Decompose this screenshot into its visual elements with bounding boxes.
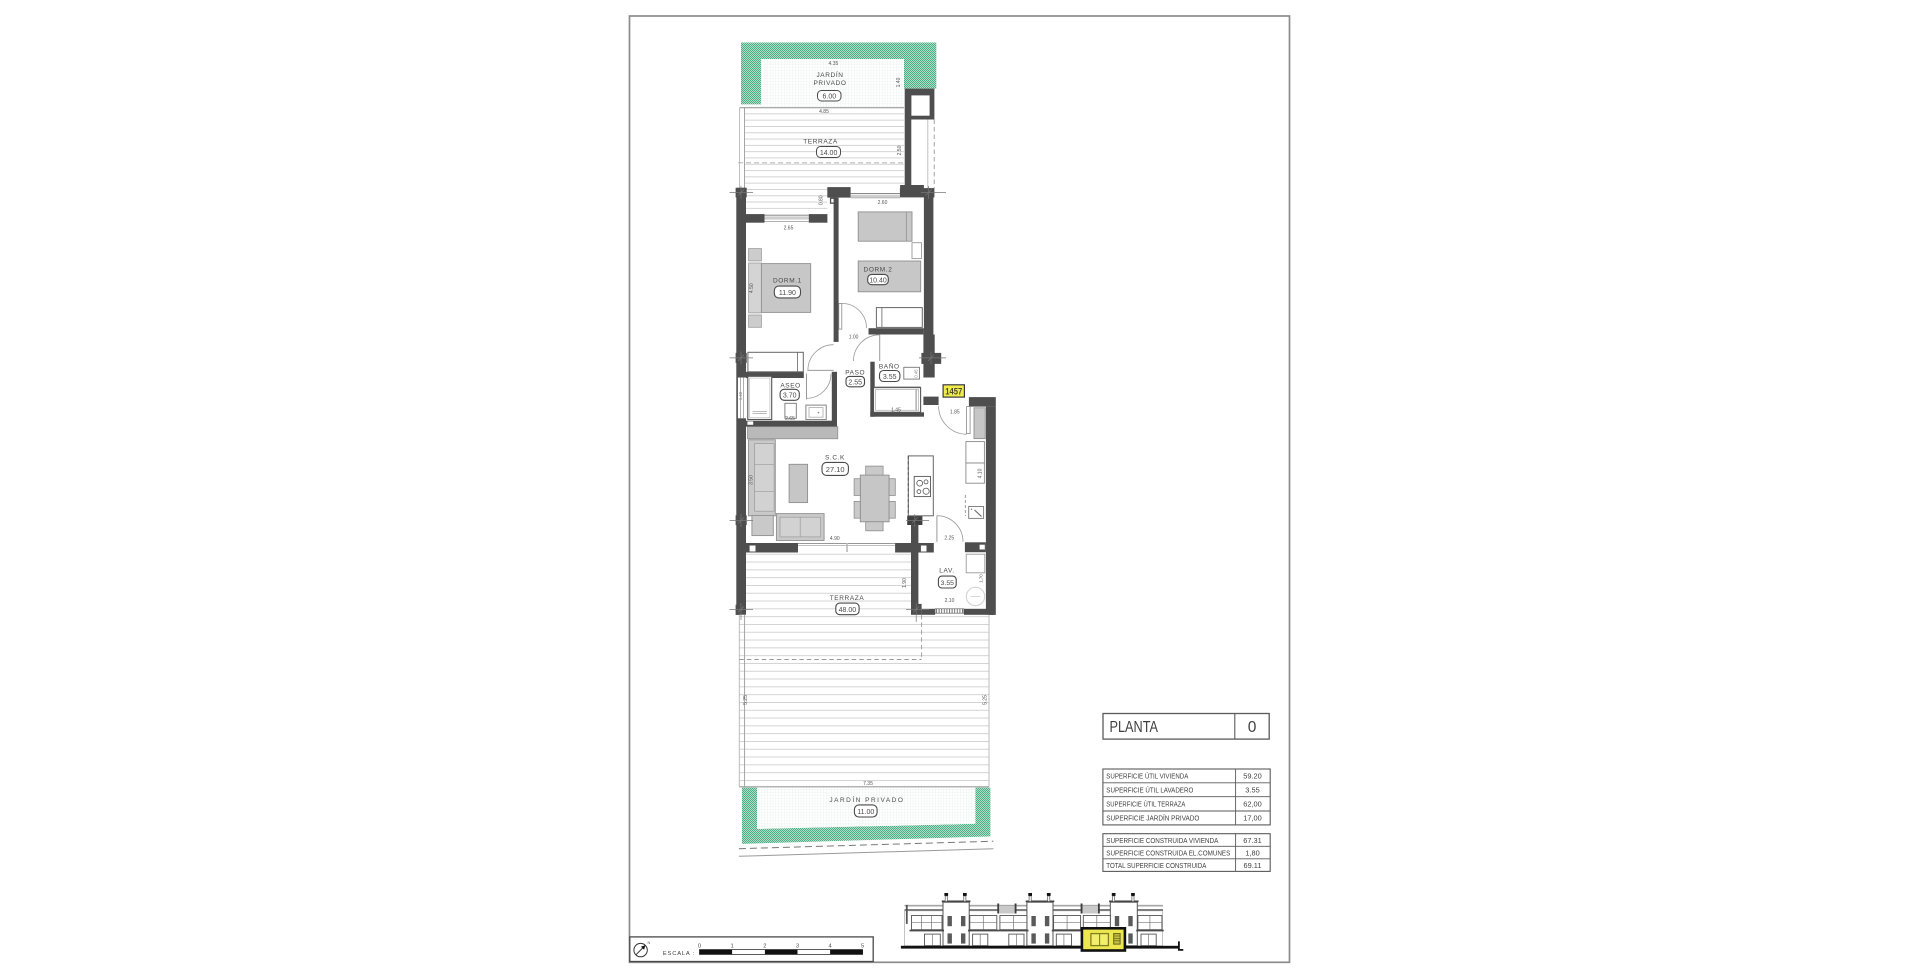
svg-text:0.80: 0.80 — [819, 195, 825, 205]
svg-text:ASEO: ASEO — [780, 382, 800, 389]
svg-text:27.10: 27.10 — [826, 465, 845, 474]
svg-text:11.00: 11.00 — [857, 809, 874, 816]
svg-text:17,00: 17,00 — [1243, 814, 1262, 823]
svg-text:SUPERFICIE ÚTIL TERRAZA: SUPERFICIE ÚTIL TERRAZA — [1106, 800, 1185, 809]
svg-text:3.70: 3.70 — [783, 393, 797, 400]
svg-text:1.40: 1.40 — [738, 391, 743, 400]
svg-text:67.31: 67.31 — [1243, 836, 1262, 845]
svg-text:2.25: 2.25 — [944, 536, 954, 542]
svg-text:11.90: 11.90 — [779, 290, 796, 297]
svg-text:2.55: 2.55 — [848, 379, 862, 386]
svg-text:1: 1 — [730, 943, 733, 949]
svg-text:6.00: 6.00 — [822, 93, 836, 100]
svg-text:SUPERFICIE CONSTRUIDA VIVIENDA: SUPERFICIE CONSTRUIDA VIVIENDA — [1106, 836, 1218, 845]
svg-text:SUPERFICIE JARDÍN PRIVADO: SUPERFICIE JARDÍN PRIVADO — [1106, 814, 1199, 823]
svg-text:2.10: 2.10 — [945, 598, 955, 604]
svg-text:1.40: 1.40 — [896, 77, 902, 87]
svg-text:2: 2 — [763, 943, 766, 949]
svg-text:14.00: 14.00 — [820, 150, 838, 157]
svg-text:ESCALA :: ESCALA : — [663, 951, 695, 957]
svg-text:1457: 1457 — [945, 386, 962, 396]
svg-text:2.50: 2.50 — [897, 145, 903, 155]
svg-text:1.90: 1.90 — [902, 578, 908, 588]
svg-text:0.45: 0.45 — [914, 369, 919, 378]
svg-text:5.25: 5.25 — [982, 695, 988, 705]
svg-text:SUPERFICIE ÚTIL VIVIENDA: SUPERFICIE ÚTIL VIVIENDA — [1106, 772, 1188, 781]
svg-text:3: 3 — [796, 943, 799, 949]
svg-text:62,00: 62,00 — [1243, 800, 1262, 809]
svg-text:2.65: 2.65 — [785, 416, 795, 422]
svg-text:2.60: 2.60 — [878, 200, 888, 206]
svg-text:4.50: 4.50 — [749, 283, 755, 293]
svg-text:2.65: 2.65 — [784, 225, 794, 231]
svg-text:4.10: 4.10 — [977, 468, 983, 478]
svg-text:DORM.1: DORM.1 — [773, 278, 802, 285]
svg-text:5.25: 5.25 — [743, 695, 749, 705]
svg-text:TERRAZA: TERRAZA — [830, 595, 865, 602]
svg-text:TERRAZA: TERRAZA — [803, 139, 838, 146]
svg-text:4.85: 4.85 — [819, 109, 829, 115]
svg-text:PASO: PASO — [845, 369, 865, 376]
svg-text:N: N — [648, 941, 651, 945]
svg-text:69.11: 69.11 — [1244, 861, 1262, 870]
svg-text:3.55: 3.55 — [941, 580, 954, 587]
svg-text:DORM.2: DORM.2 — [864, 266, 893, 273]
svg-text:1.45: 1.45 — [891, 407, 901, 413]
svg-text:SUPERFICIE CONSTRUIDA EL.COMUN: SUPERFICIE CONSTRUIDA EL.COMUNES — [1106, 848, 1230, 857]
svg-text:1,80: 1,80 — [1245, 848, 1259, 857]
svg-text:SUPERFICIE ÚTIL LAVADERO: SUPERFICIE ÚTIL LAVADERO — [1106, 785, 1193, 794]
svg-text:0: 0 — [698, 943, 701, 949]
svg-text:10.40: 10.40 — [869, 277, 887, 284]
svg-text:1.85: 1.85 — [950, 409, 960, 415]
svg-text:59.20: 59.20 — [1243, 772, 1262, 781]
svg-text:JARDÍN: JARDÍN — [816, 70, 843, 79]
svg-text:3.55: 3.55 — [1245, 785, 1259, 794]
svg-text:4.35: 4.35 — [829, 61, 839, 67]
svg-text:3.50: 3.50 — [749, 475, 755, 485]
svg-text:1.00: 1.00 — [849, 334, 859, 340]
svg-text:48.00: 48.00 — [839, 607, 857, 614]
svg-text:PLANTA: PLANTA — [1110, 719, 1159, 736]
svg-text:1.70: 1.70 — [979, 574, 984, 583]
svg-text:0: 0 — [1248, 719, 1257, 736]
svg-text:7.35: 7.35 — [863, 781, 873, 787]
svg-text:JARDÍN PRIVADO: JARDÍN PRIVADO — [829, 795, 904, 804]
svg-text:LAV.: LAV. — [939, 567, 954, 574]
svg-text:PRIVADO: PRIVADO — [814, 80, 847, 87]
svg-text:4.90: 4.90 — [830, 536, 840, 542]
svg-text:3.55: 3.55 — [883, 374, 897, 381]
svg-text:5: 5 — [861, 943, 864, 949]
svg-text:BAÑO: BAÑO — [879, 362, 900, 371]
svg-text:TOTAL SUPERFICIE CONSTRUIDA: TOTAL SUPERFICIE CONSTRUIDA — [1106, 861, 1206, 870]
svg-text:S.C.K: S.C.K — [825, 454, 845, 461]
